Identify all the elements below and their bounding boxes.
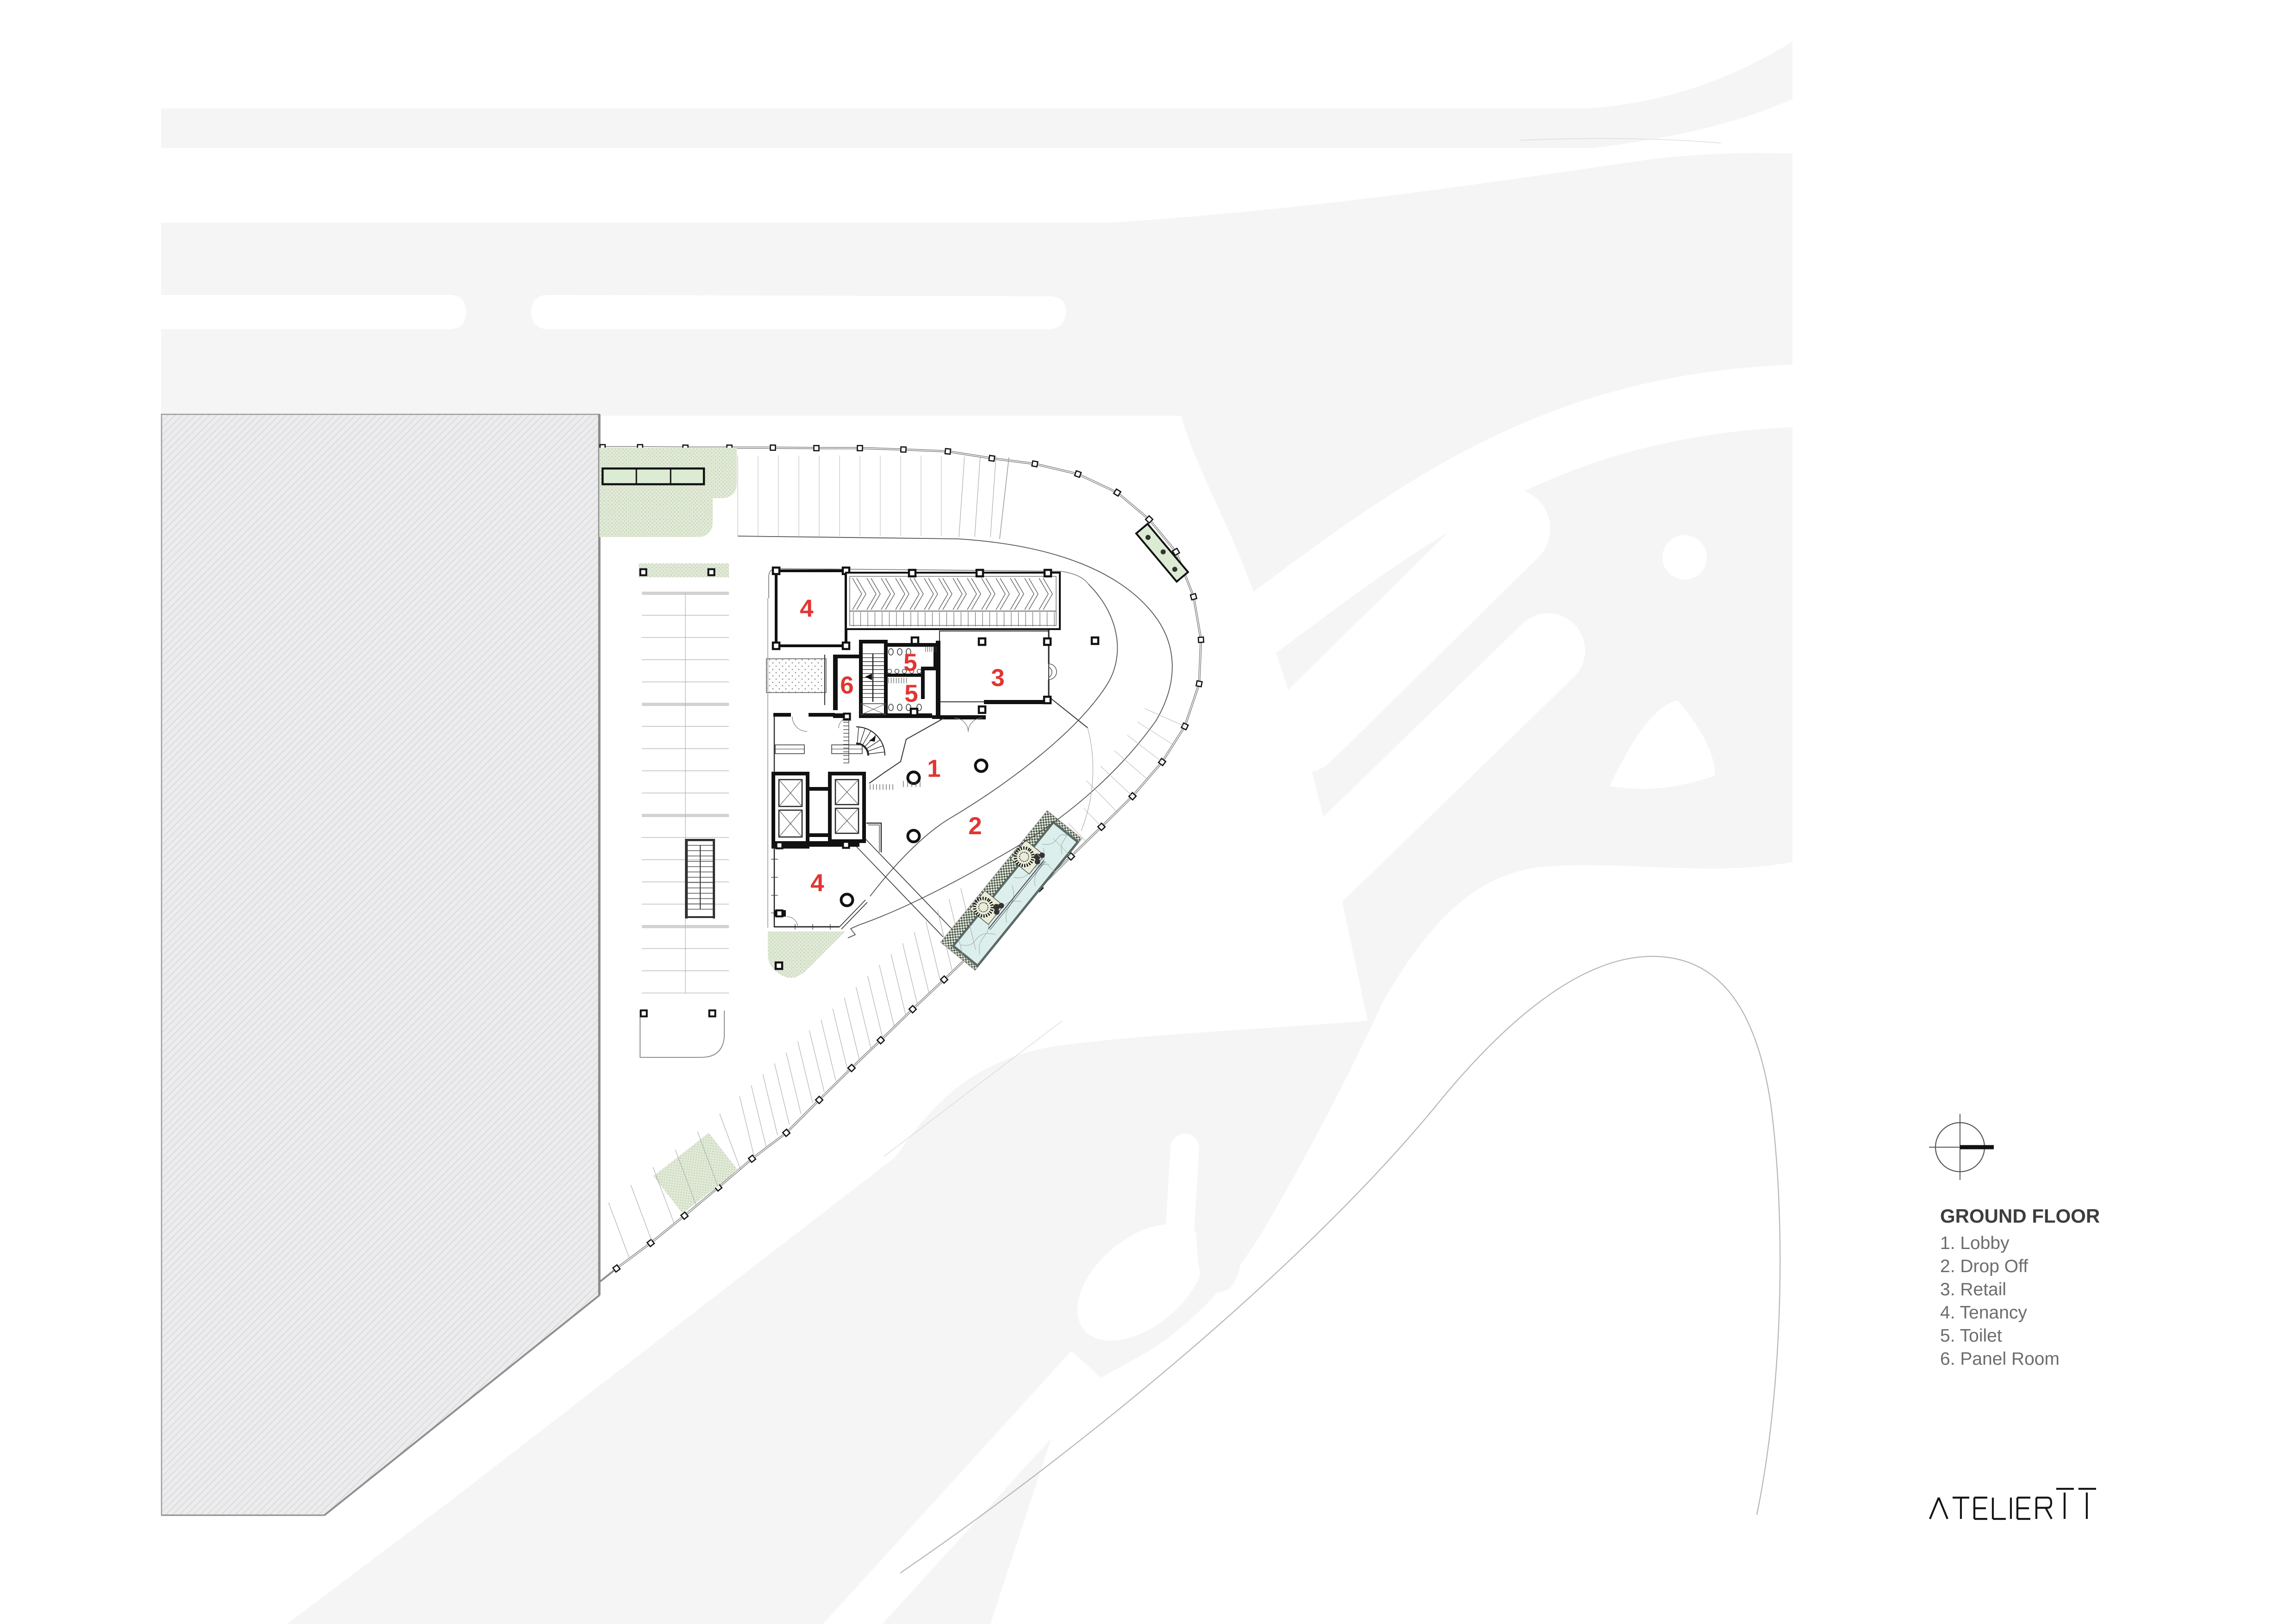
svg-text:3: 3 <box>991 664 1004 692</box>
svg-text:4. Tenancy: 4. Tenancy <box>1940 1303 2027 1323</box>
svg-text:GROUND FLOOR: GROUND FLOOR <box>1940 1205 2100 1227</box>
svg-text:5: 5 <box>903 649 917 676</box>
svg-text:4: 4 <box>810 869 824 897</box>
svg-text:4: 4 <box>800 595 814 622</box>
svg-text:5. Toilet: 5. Toilet <box>1940 1326 2002 1346</box>
svg-text:6. Panel Room: 6. Panel Room <box>1940 1349 2060 1369</box>
svg-text:2. Drop Off: 2. Drop Off <box>1940 1256 2028 1276</box>
svg-text:6: 6 <box>840 672 853 699</box>
svg-text:3. Retail: 3. Retail <box>1940 1280 2006 1299</box>
svg-text:5: 5 <box>904 680 918 707</box>
svg-text:1: 1 <box>927 755 940 782</box>
svg-text:1. Lobby: 1. Lobby <box>1940 1233 2010 1253</box>
svg-text:2: 2 <box>968 812 982 840</box>
